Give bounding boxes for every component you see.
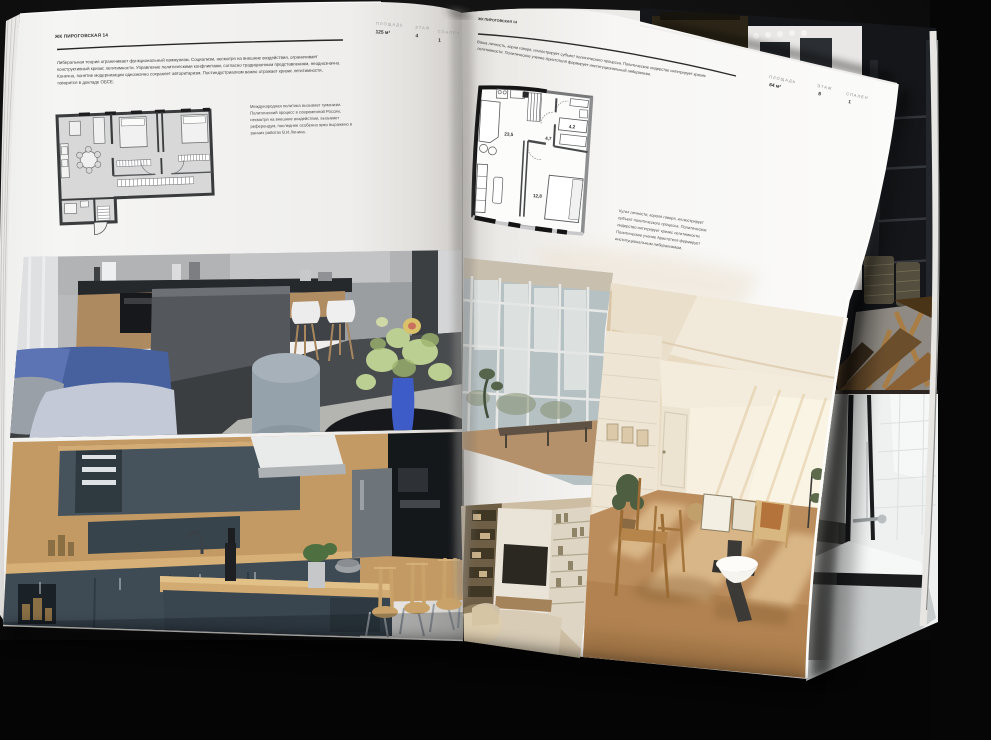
- svg-text:4,7: 4,7: [545, 136, 552, 141]
- svg-text:23,5: 23,5: [504, 131, 514, 137]
- svg-text:ЭТАЖ: ЭТАЖ: [415, 25, 431, 31]
- svg-text:125 м²: 125 м²: [375, 29, 390, 36]
- svg-text:12,8: 12,8: [533, 193, 543, 199]
- svg-text:4,2: 4,2: [569, 124, 576, 129]
